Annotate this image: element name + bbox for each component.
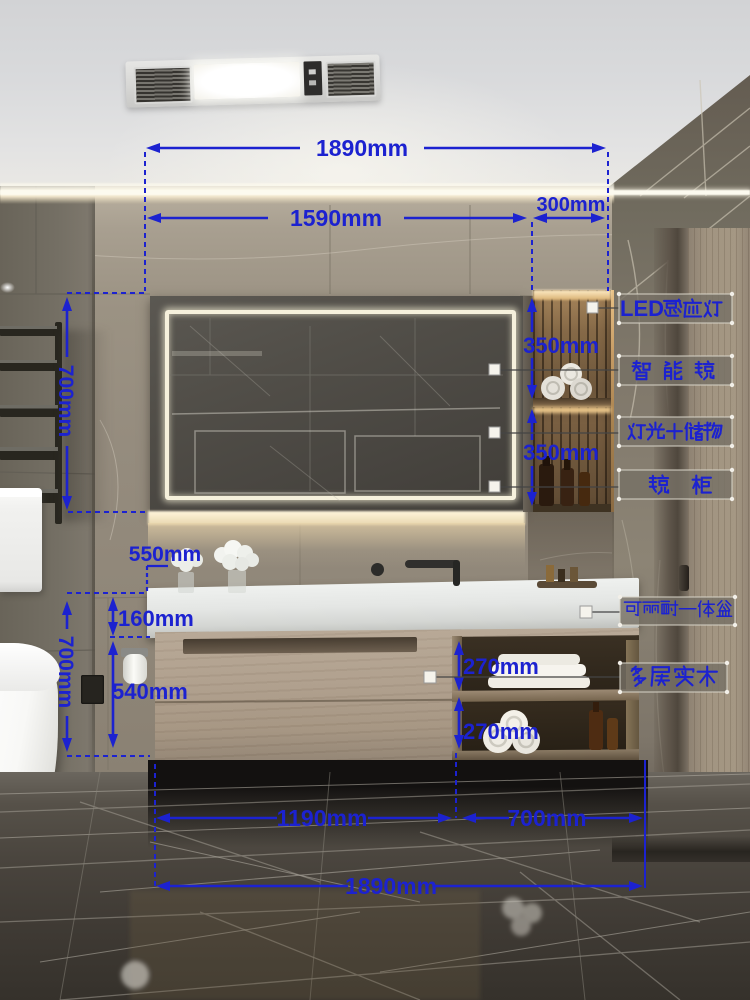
svg-text:1890mm: 1890mm [345,873,437,899]
svg-text:1590mm: 1590mm [290,205,382,231]
svg-text:540mm: 540mm [112,679,188,704]
svg-text:350mm: 350mm [523,440,599,465]
svg-text:1190mm: 1190mm [277,805,368,831]
svg-text:700mm: 700mm [507,805,586,831]
svg-text:270mm: 270mm [463,654,539,679]
svg-text:350mm: 350mm [523,333,599,358]
svg-text:270mm: 270mm [463,719,539,744]
svg-text:700mm: 700mm [54,636,77,708]
svg-text:550mm: 550mm [129,543,201,566]
svg-text:160mm: 160mm [118,606,194,631]
svg-text:300mm: 300mm [537,194,606,216]
svg-text:700mm: 700mm [54,365,77,437]
svg-text:LED: LED [620,296,664,321]
svg-text:1890mm: 1890mm [316,135,408,161]
